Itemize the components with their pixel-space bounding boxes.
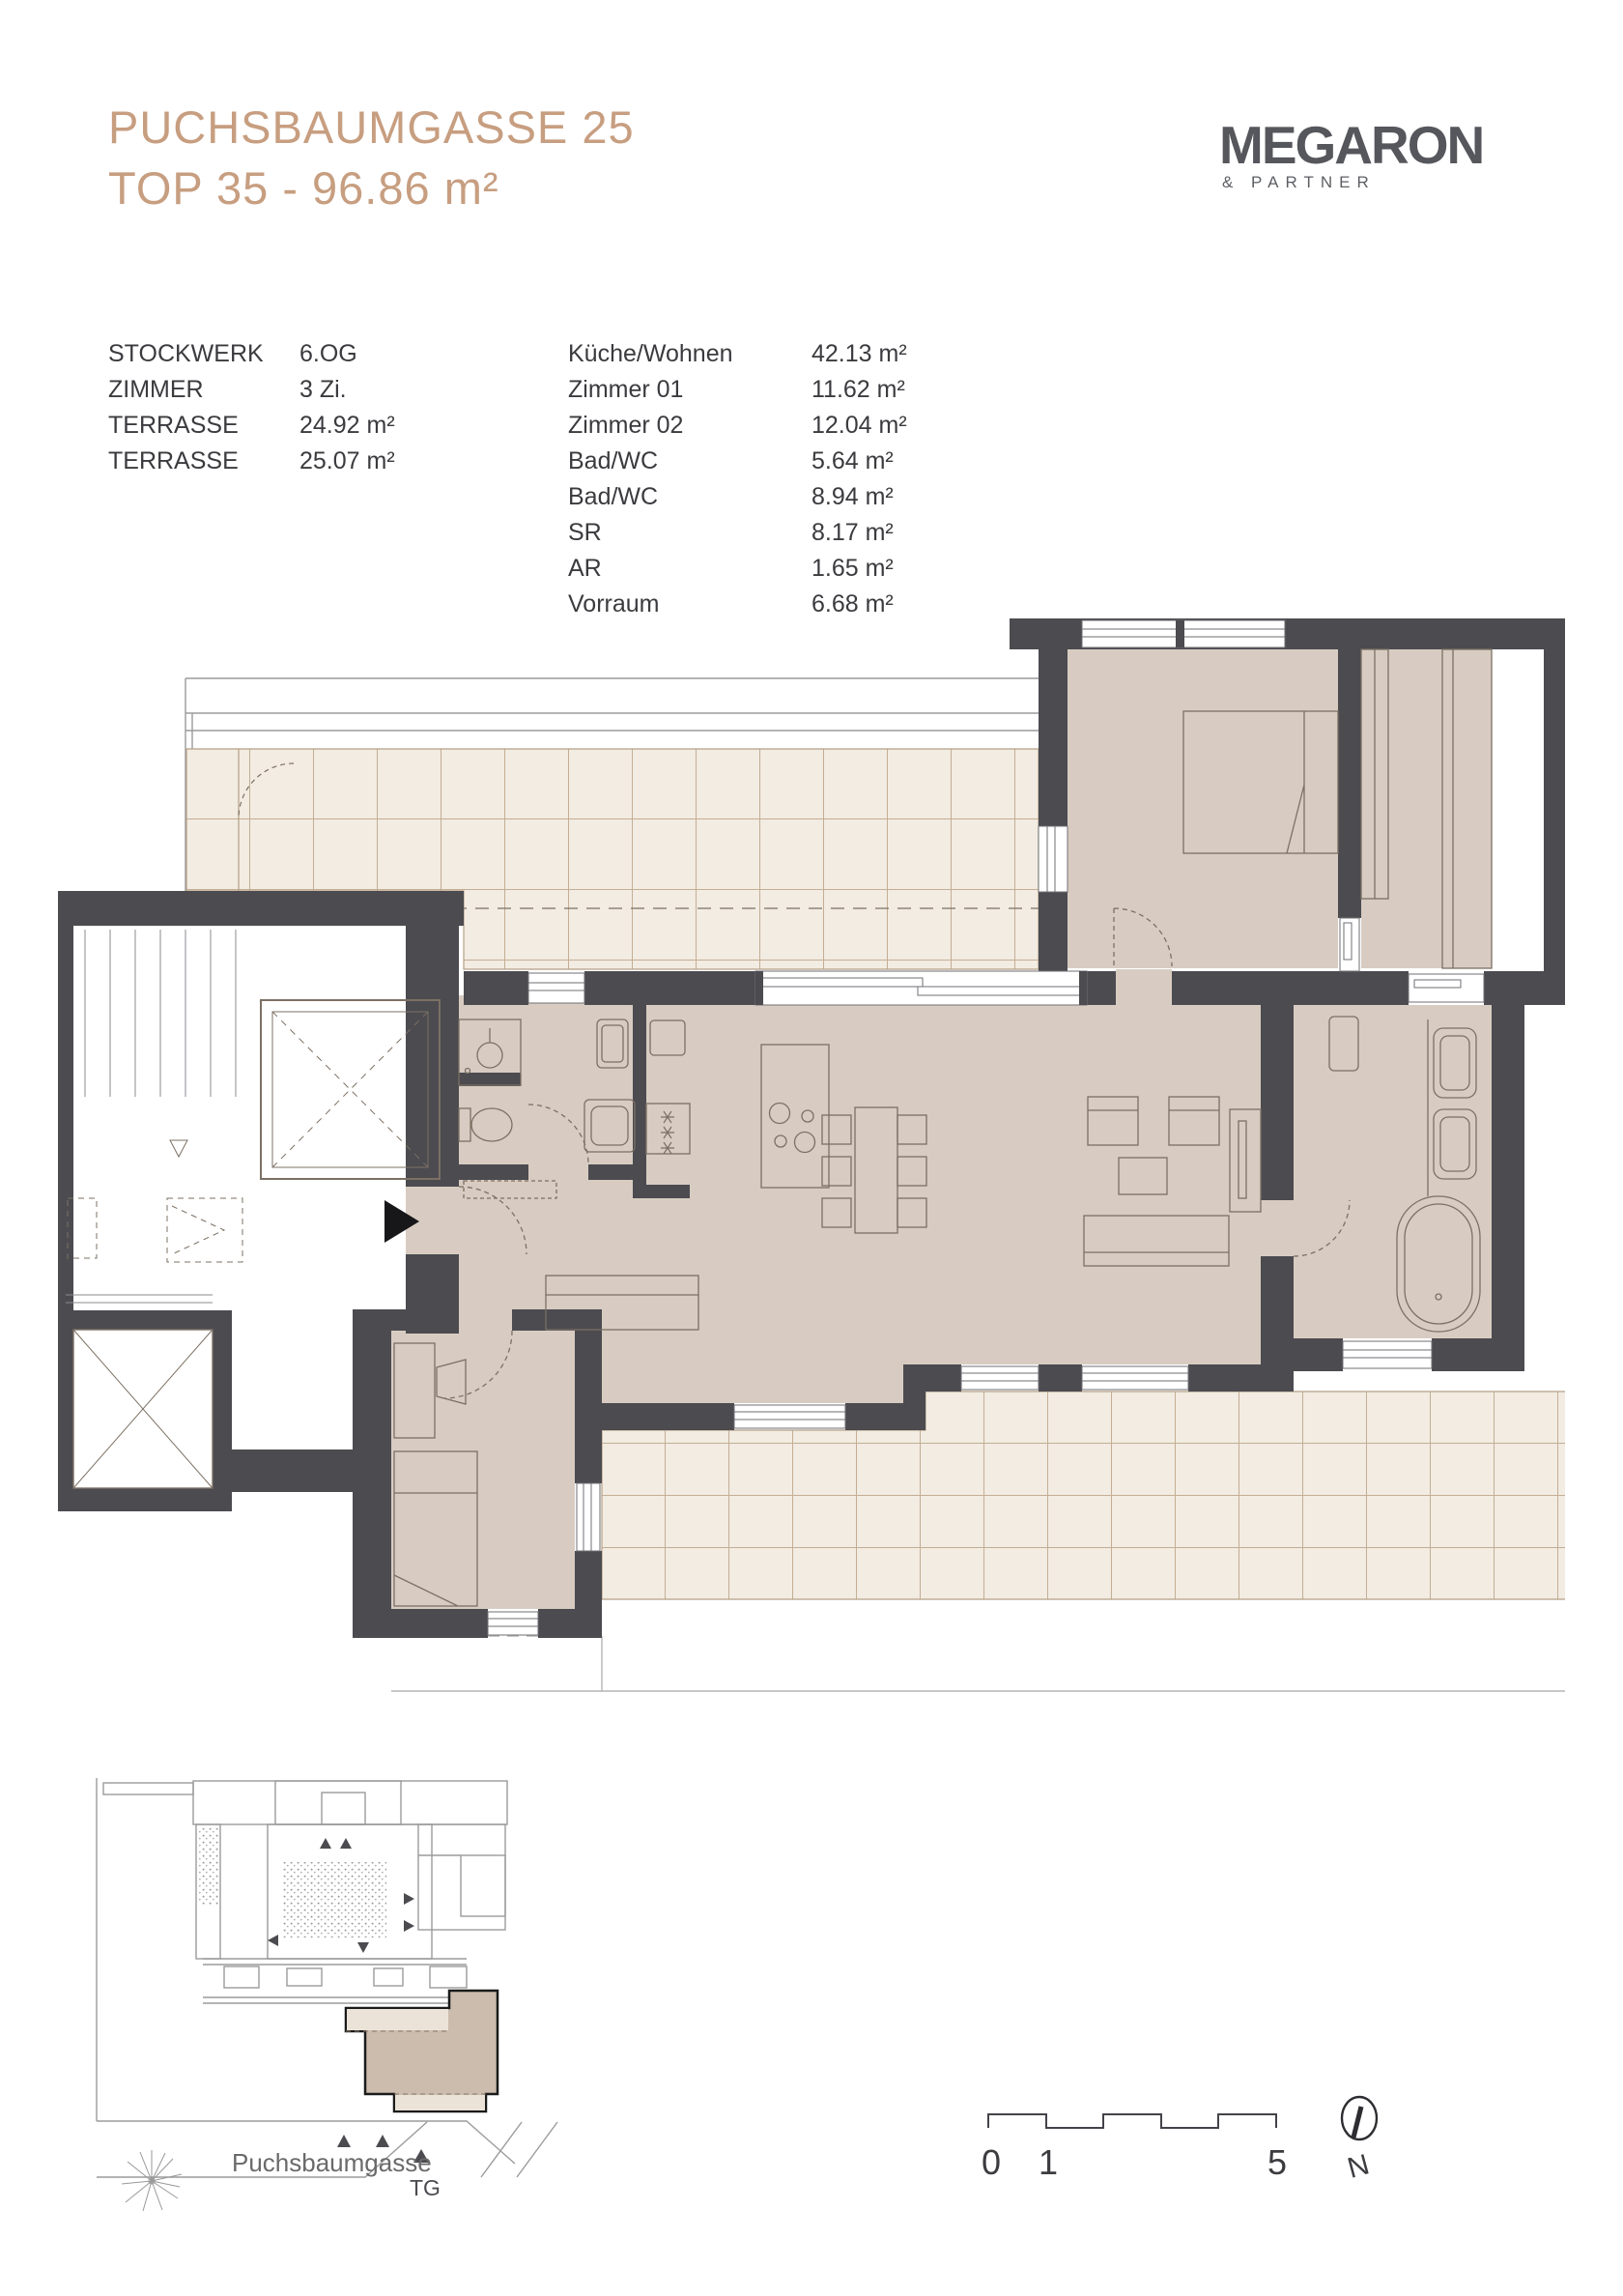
site-plan: Puchsbaumgasse TG <box>87 1773 570 2271</box>
window-zimmer02-south <box>488 1612 538 1635</box>
room-name: Bad/WC <box>568 444 811 479</box>
room-name: Bad/WC <box>568 479 811 515</box>
table-row: SR8.17 m² <box>568 515 907 551</box>
window-terrace-sliding-door <box>755 971 1087 1005</box>
info-label: TERRASSE <box>108 408 299 444</box>
room-areas-table: Küche/Wohnen42.13 m² Zimmer 0111.62 m² Z… <box>568 336 907 622</box>
shaft <box>73 1330 213 1488</box>
room-name: Küche/Wohnen <box>568 336 811 372</box>
window-zimmer01-top <box>1082 620 1285 647</box>
floorplan-sheet: PUCHSBAUMGASSE 25 TOP 35 - 96.86 m² MEGA… <box>0 0 1623 2296</box>
room-area: 5.64 m² <box>811 444 894 479</box>
room-area: 8.17 m² <box>811 515 894 551</box>
scale-svg: 0 1 5 N <box>981 2078 1618 2232</box>
stair-direction-arrow-icon <box>170 1140 187 1157</box>
scale-label-1: 1 <box>1039 2142 1058 2182</box>
room-name: Zimmer 02 <box>568 408 811 444</box>
table-row: Küche/Wohnen42.13 m² <box>568 336 907 372</box>
company-logo: MEGARON & PARTNER <box>1219 120 1483 192</box>
info-label: TERRASSE <box>108 444 299 479</box>
info-value: 24.92 m² <box>299 408 395 444</box>
north-compass-icon: N <box>1342 2097 1377 2185</box>
table-row: ZIMMER3 Zi. <box>108 372 395 408</box>
table-row: Zimmer 0111.62 m² <box>568 372 907 408</box>
room-area: 11.62 m² <box>811 372 905 408</box>
info-value: 6.OG <box>299 336 357 372</box>
window-bath-large-south <box>1343 1341 1432 1368</box>
logo-wordmark: MEGARON <box>1219 120 1483 170</box>
room-area: 12.04 m² <box>811 408 907 444</box>
scale-label-5: 5 <box>1267 2142 1287 2182</box>
terrace-upper <box>186 749 1039 969</box>
site-courtyard-green <box>283 1862 386 1937</box>
scale-and-compass: 0 1 5 N <box>981 2078 1618 2237</box>
room-name: Vorraum <box>568 587 811 622</box>
table-row: AR1.65 m² <box>568 551 907 587</box>
site-buildings <box>97 1778 557 2177</box>
scale-bar: 0 1 5 <box>982 2114 1287 2182</box>
table-row: Vorraum6.68 m² <box>568 587 907 622</box>
table-row: TERRASSE24.92 m² <box>108 408 395 444</box>
unit-info-table: STOCKWERK6.OG ZIMMER3 Zi. TERRASSE24.92 … <box>108 336 395 479</box>
site-green-strip <box>198 1828 218 1906</box>
table-row: TERRASSE25.07 m² <box>108 444 395 479</box>
info-value: 3 Zi. <box>299 372 347 408</box>
window-bath-small <box>528 973 584 1003</box>
window-zimmer02-east <box>577 1483 600 1551</box>
room-name: AR <box>568 551 811 587</box>
room-area: 1.65 m² <box>811 551 894 587</box>
north-label: N <box>1344 2148 1372 2184</box>
room-area: 6.68 m² <box>811 587 894 622</box>
room-area: 8.94 m² <box>811 479 894 515</box>
table-row: STOCKWERK6.OG <box>108 336 395 372</box>
tree-icon <box>122 2150 182 2211</box>
window-zimmer01-left <box>1039 826 1068 892</box>
freezer-stars-icon <box>661 1111 674 1154</box>
table-row: Bad/WC5.64 m² <box>568 444 907 479</box>
floor-sr <box>1361 649 1492 968</box>
reserved-dashed-areas <box>68 1198 242 1262</box>
floorplan-svg <box>58 618 1565 1730</box>
room-name: Zimmer 01 <box>568 372 811 408</box>
floor-zimmer-02 <box>391 1331 575 1609</box>
stair-treads <box>85 930 236 1097</box>
info-label: ZIMMER <box>108 372 299 408</box>
room-name: SR <box>568 515 811 551</box>
floorplan-drawing <box>58 618 1565 1735</box>
logo-subtitle: & PARTNER <box>1222 173 1483 192</box>
page-title: PUCHSBAUMGASSE 25 TOP 35 - 96.86 m² <box>108 97 635 218</box>
sliding-door-sr <box>1409 974 1484 1002</box>
title-line-1: PUCHSBAUMGASSE 25 <box>108 97 635 158</box>
title-line-2: TOP 35 - 96.86 m² <box>108 158 635 218</box>
street-label: Puchsbaumgasse <box>232 2148 432 2177</box>
sliding-door-divider <box>1340 918 1359 971</box>
info-label: STOCKWERK <box>108 336 299 372</box>
scale-label-0: 0 <box>982 2142 1001 2182</box>
site-plan-svg: Puchsbaumgasse TG <box>87 1773 570 2266</box>
table-row: Zimmer 0212.04 m² <box>568 408 907 444</box>
table-row: Bad/WC8.94 m² <box>568 479 907 515</box>
highlighted-unit <box>346 1991 498 2111</box>
room-area: 42.13 m² <box>811 336 907 372</box>
garage-label: TG <box>410 2175 441 2200</box>
info-value: 25.07 m² <box>299 444 395 479</box>
